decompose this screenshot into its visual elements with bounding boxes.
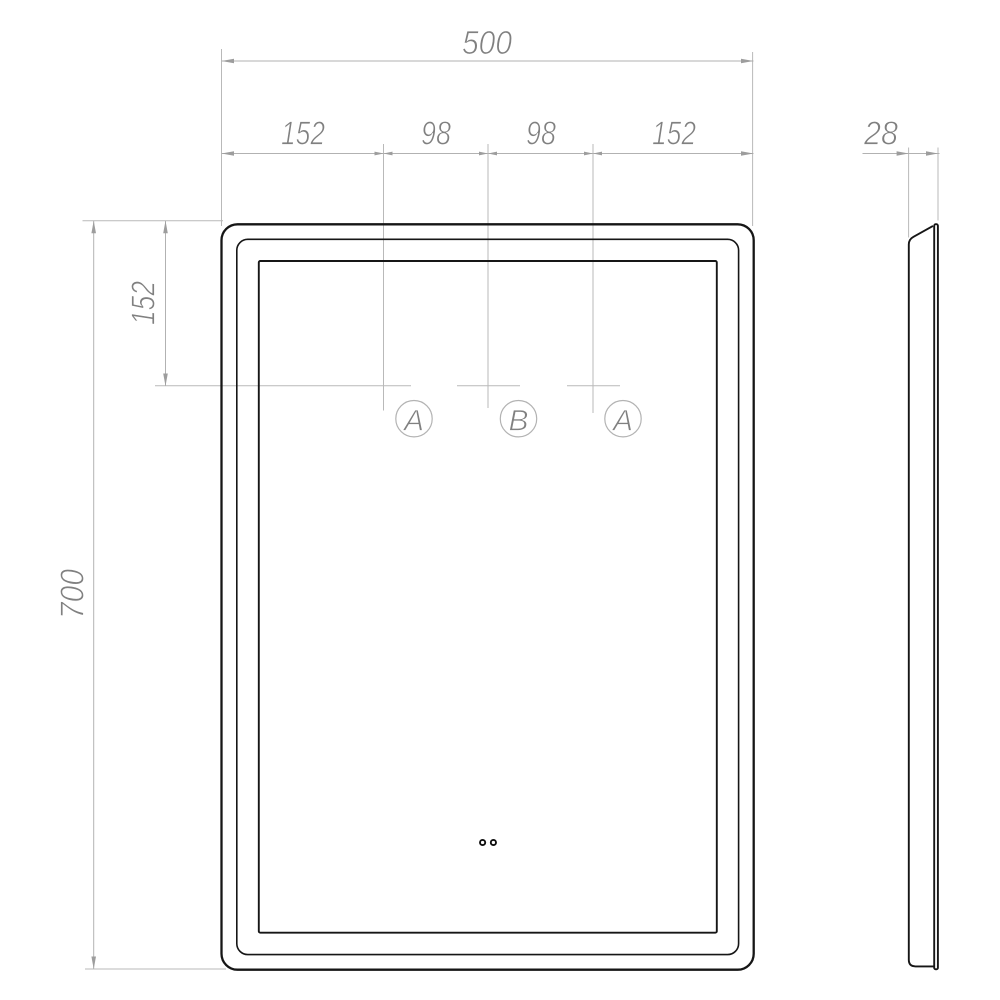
svg-text:28: 28 bbox=[863, 115, 899, 152]
svg-text:152: 152 bbox=[125, 281, 162, 325]
svg-text:98: 98 bbox=[421, 115, 452, 152]
svg-text:152: 152 bbox=[652, 115, 696, 152]
svg-text:A: A bbox=[402, 405, 424, 438]
svg-text:152: 152 bbox=[281, 115, 325, 152]
svg-text:A: A bbox=[611, 405, 633, 438]
svg-text:B: B bbox=[508, 405, 528, 438]
svg-text:98: 98 bbox=[526, 115, 557, 152]
svg-text:700: 700 bbox=[53, 568, 90, 619]
svg-text:500: 500 bbox=[462, 24, 513, 61]
